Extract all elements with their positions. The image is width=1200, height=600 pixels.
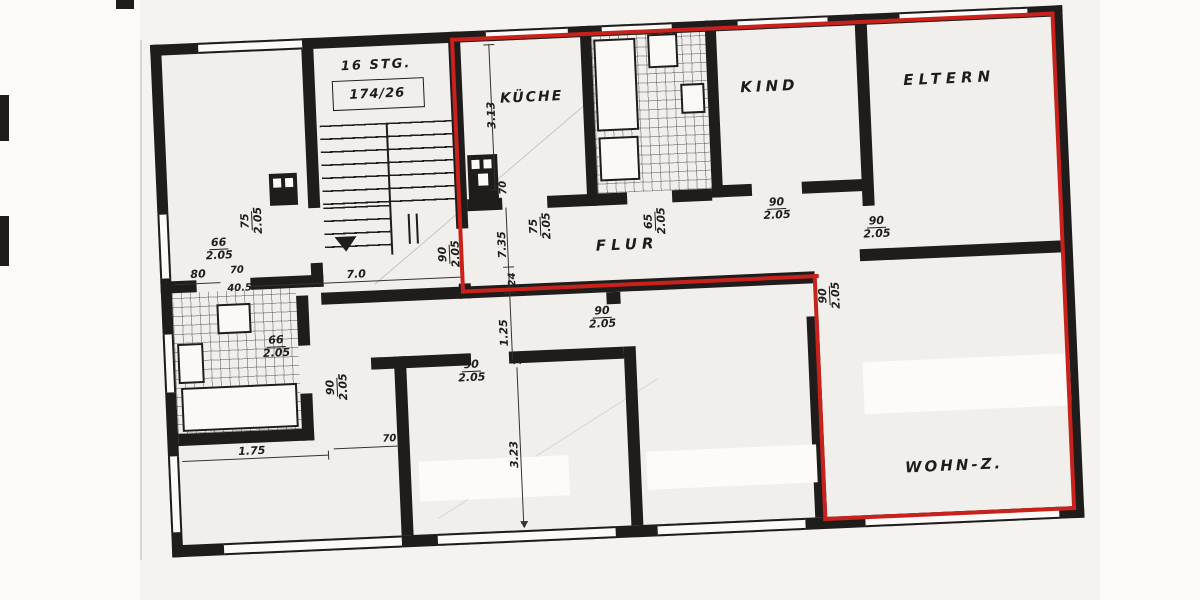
dim-denominator: 2.05	[763, 209, 791, 222]
wall-bath2-east-upper	[296, 295, 310, 345]
door-dim-kind: 90 2.05	[763, 196, 791, 222]
room-label-flur: FLUR	[595, 234, 658, 255]
dim-denominator: 2.05	[252, 207, 265, 235]
window-bottomleft-west	[168, 456, 182, 532]
measure-70-bottom: 70	[382, 433, 396, 445]
wall-bottommid-east	[624, 346, 644, 525]
measure-7-35: 7.35	[495, 231, 509, 259]
toilet-2	[216, 303, 251, 334]
whiteout-patch	[863, 353, 1072, 414]
stair-treads-lower-flight	[323, 205, 391, 258]
scan-edge-mark	[116, 0, 134, 9]
measure-3-23: 3.23	[507, 441, 521, 469]
sink	[680, 83, 705, 114]
door-dim-eltern: 90 2.05	[863, 215, 891, 241]
room-label-eltern: ELTERN	[903, 67, 996, 89]
dim-denominator: 2.05	[655, 207, 668, 235]
apartment-outline-top	[450, 12, 1055, 42]
chimney-flue	[483, 159, 491, 168]
bathtub-2	[181, 383, 299, 432]
scan-edge-mark	[0, 95, 9, 141]
window-room-topleft	[198, 38, 302, 54]
window-south-3	[657, 518, 805, 536]
shower-tray	[598, 136, 640, 182]
measure-80: 80	[190, 267, 206, 281]
dim-denominator: 2.05	[263, 347, 291, 360]
dim-denominator: 2.05	[458, 371, 486, 384]
measure-1-25: 1.25	[497, 319, 511, 347]
wall-bad-south	[672, 189, 712, 203]
measure-1-75: 1.75	[238, 444, 266, 458]
wall-eltern-south	[860, 240, 1062, 261]
wall-landing-west	[160, 280, 196, 294]
door-dim-bottom-mid: 90 2.05	[457, 358, 485, 384]
toilet	[647, 33, 678, 68]
dimension-tick	[328, 451, 329, 460]
dim-denominator: 2.05	[540, 212, 553, 240]
door-dim-flur-south: 90 2.05	[588, 305, 616, 331]
chimney-flue	[273, 178, 281, 187]
door-stub-flur-south	[606, 292, 621, 305]
window-landing-west	[157, 214, 171, 278]
wall-bottom-mid-1	[371, 353, 471, 369]
chimney-flue	[478, 173, 489, 185]
chimney-block	[269, 173, 298, 206]
door-dim-stairwell: 75 2.05	[239, 207, 265, 235]
wall-kind-south-1	[712, 184, 752, 198]
floor-plan: 16 STG. 174/26 KÜCHE KIND ELTERN FLUR WO…	[150, 5, 1085, 557]
dim-denominator: 2.05	[337, 373, 350, 401]
door-dim-bath2: 66 2.05	[262, 334, 290, 360]
door-dim-bottomleft: 90 2.05	[324, 373, 350, 401]
staircase-number: 174/26	[349, 85, 406, 102]
wall-bottom-mid-2	[509, 347, 624, 364]
door-dim-kueche: 75 2.05	[527, 212, 553, 240]
measure-7-0: 7.0	[346, 267, 366, 281]
staircase-label: 16 STG.	[341, 56, 412, 74]
chimney-flue	[285, 178, 293, 187]
measure-24: 24	[507, 272, 519, 286]
dim-denominator: 2.05	[589, 317, 617, 330]
window-south-2	[438, 526, 616, 546]
scanned-floor-plan-page: 16 STG. 174/26 KÜCHE KIND ELTERN FLUR WO…	[0, 0, 1200, 600]
measure-3-13: 3.13	[484, 101, 498, 129]
door-dim-landing: 66 2.05	[205, 236, 233, 262]
measure-70-niche: 70	[512, 351, 524, 365]
bathtub	[593, 38, 639, 132]
wall-stairwell-west-upper	[301, 38, 320, 208]
dim-denominator: 2.05	[829, 281, 842, 309]
dim-denominator: 2.05	[449, 240, 462, 268]
door-dim-bad: 65 2.05	[642, 207, 668, 235]
window-south-1	[224, 535, 402, 555]
dim-denominator: 2.05	[205, 249, 233, 262]
whiteout-patch	[418, 455, 570, 502]
room-label-kind: KIND	[740, 76, 799, 97]
chimney-flue	[471, 160, 479, 169]
dimension-arrow	[520, 521, 528, 528]
door-dim-wohnzimmer: 90 2.05	[817, 281, 843, 309]
dimension-line-70	[334, 445, 400, 449]
room-label-kueche: KÜCHE	[500, 88, 564, 107]
stair-up-mark	[408, 213, 419, 243]
whiteout-patch	[646, 444, 817, 489]
measure-70-kueche: 70	[498, 181, 510, 195]
measure-40-5: 40.5	[227, 282, 252, 294]
door-dim-entrance: 90 2.05	[436, 240, 462, 268]
scan-edge-mark	[0, 216, 9, 266]
paper-fold-line	[140, 40, 142, 560]
wall-stair-south	[321, 287, 461, 305]
stair-direction-arrow	[335, 236, 358, 252]
wall-kind-eltern	[854, 14, 874, 206]
wall-kueche-south-2	[547, 192, 627, 207]
sink-2	[177, 343, 205, 384]
dim-denominator: 2.05	[863, 227, 891, 240]
room-label-wohnzimmer: WOHN-Z.	[905, 454, 1004, 476]
measure-70: 70	[230, 265, 244, 277]
